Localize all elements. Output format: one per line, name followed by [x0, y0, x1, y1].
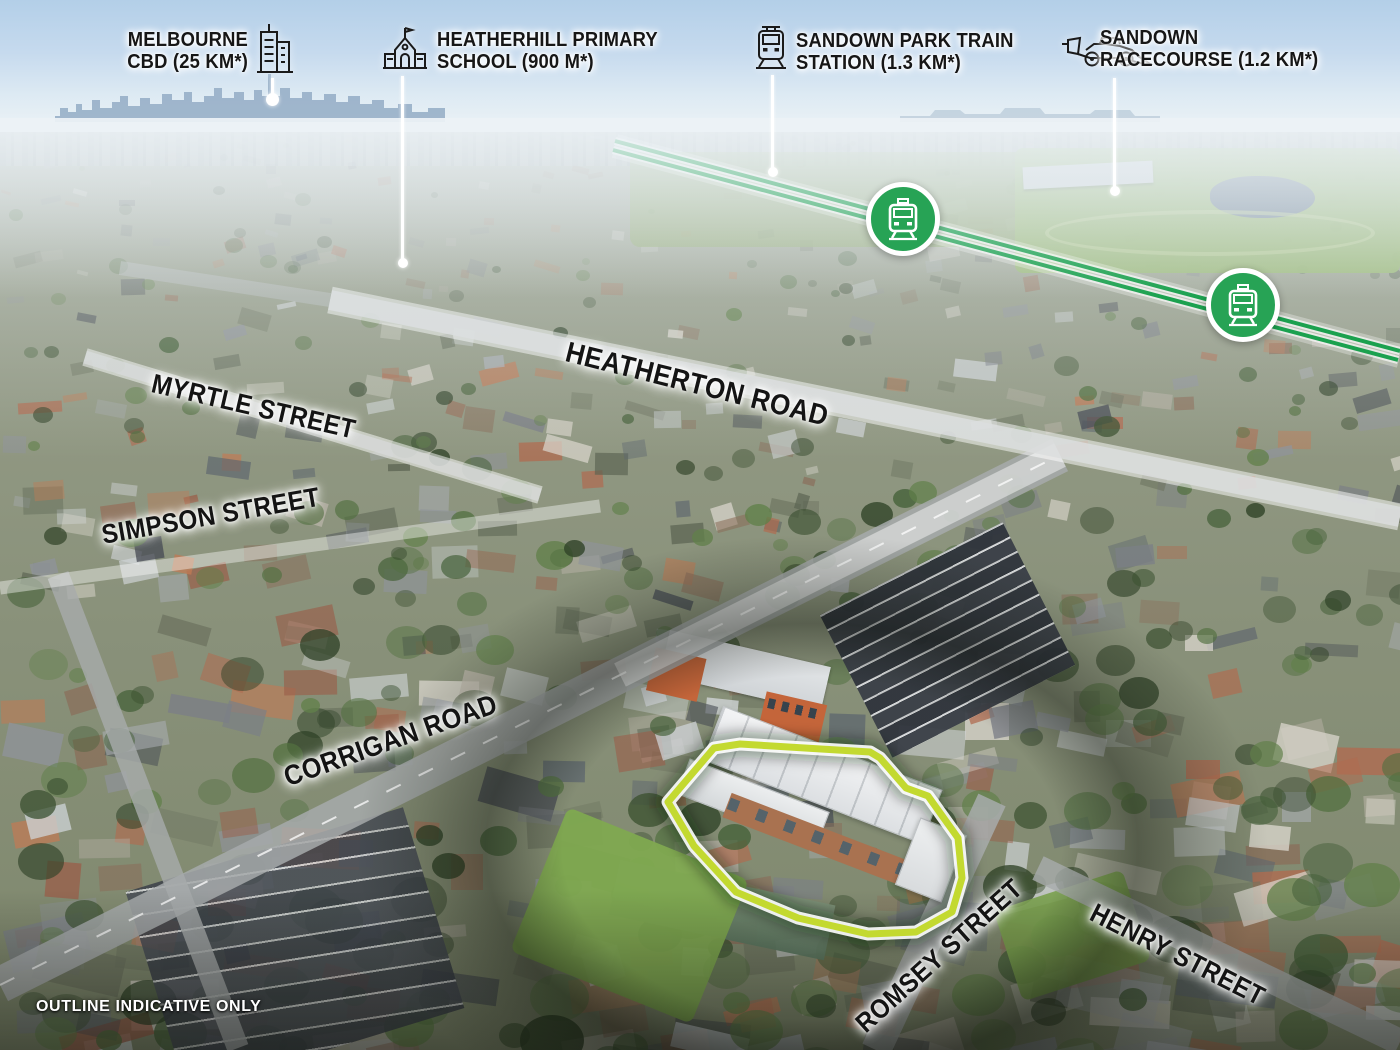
leader-line-heatherhill-primary-school	[401, 76, 404, 261]
poi-line1: HEATHERHILL PRIMARY	[437, 29, 658, 51]
poi-line2: RACECOURSE (1.2 KM*)	[1100, 49, 1318, 71]
poi-label-melbourne-cbd: MELBOURNE CBD (25 KM*)	[127, 29, 248, 73]
poi-line2: CBD (25 KM*)	[127, 51, 248, 73]
poi-line1: SANDOWN	[1100, 27, 1318, 49]
train-station-icon	[748, 21, 794, 73]
leader-dot-sandown-park-train-station	[768, 167, 778, 177]
leader-line-sandown-racecourse	[1113, 78, 1116, 188]
city-buildings-icon	[251, 20, 297, 76]
poi-label-heatherhill-primary-school: HEATHERHILL PRIMARY SCHOOL (900 M*)	[437, 29, 658, 73]
leader-dot-sandown-racecourse	[1110, 186, 1120, 196]
poi-label-sandown-racecourse: SANDOWN RACECOURSE (1.2 KM*)	[1100, 27, 1318, 71]
outline-white-edge	[668, 744, 962, 934]
leader-dot-heatherhill-primary-school	[398, 258, 408, 268]
poi-line1: MELBOURNE	[127, 29, 248, 51]
outline-shadow	[668, 744, 962, 934]
school-icon	[381, 24, 429, 74]
poi-line2: STATION (1.3 KM*)	[796, 52, 1014, 74]
poi-line1: SANDOWN PARK TRAIN	[796, 30, 1014, 52]
poi-line2: SCHOOL (900 M*)	[437, 51, 658, 73]
aerial-property-marketing-image: MELBOURNE CBD (25 KM*) HEATHERHILL PRIMA…	[0, 0, 1400, 1050]
outline-green-stroke	[668, 744, 962, 934]
outline-disclaimer-text: OUTLINE INDICATIVE ONLY	[36, 998, 261, 1016]
leader-dot-melbourne-cbd	[266, 93, 279, 106]
poi-label-sandown-park-train-station: SANDOWN PARK TRAIN STATION (1.3 KM*)	[796, 30, 1014, 74]
leader-line-sandown-park-train-station	[771, 75, 774, 169]
